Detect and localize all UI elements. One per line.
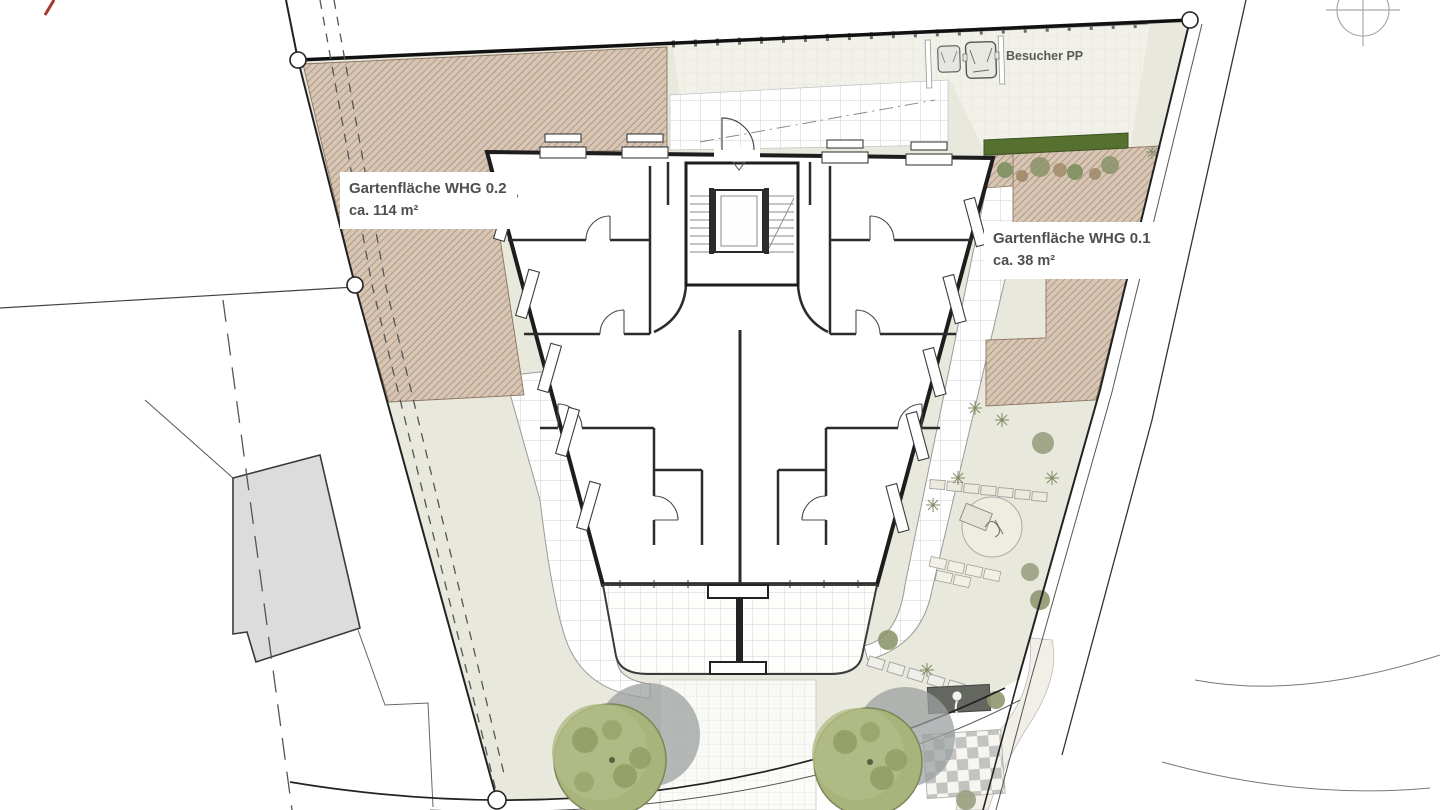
site-plan: Gartenfläche WHG 0.2 ca. 114 m² Gartenfl…	[0, 0, 1440, 810]
garden-label-whg01-line2: ca. 38 m²	[993, 250, 1151, 272]
garden-label-whg02: Gartenfläche WHG 0.2 ca. 114 m²	[340, 172, 517, 229]
site-plan-drawing	[0, 0, 1440, 810]
car-icon	[938, 46, 961, 73]
garden-label-whg02-line1: Gartenfläche WHG 0.2	[349, 177, 507, 200]
visitor-parking-label: Besucher PP	[1006, 49, 1083, 63]
garden-label-whg01-line1: Gartenfläche WHG 0.1	[993, 227, 1151, 250]
garden-label-whg02-line2: ca. 114 m²	[349, 200, 507, 222]
garden-label-whg01: Gartenfläche WHG 0.1 ca. 38 m²	[984, 222, 1161, 279]
car-icon	[963, 41, 999, 78]
